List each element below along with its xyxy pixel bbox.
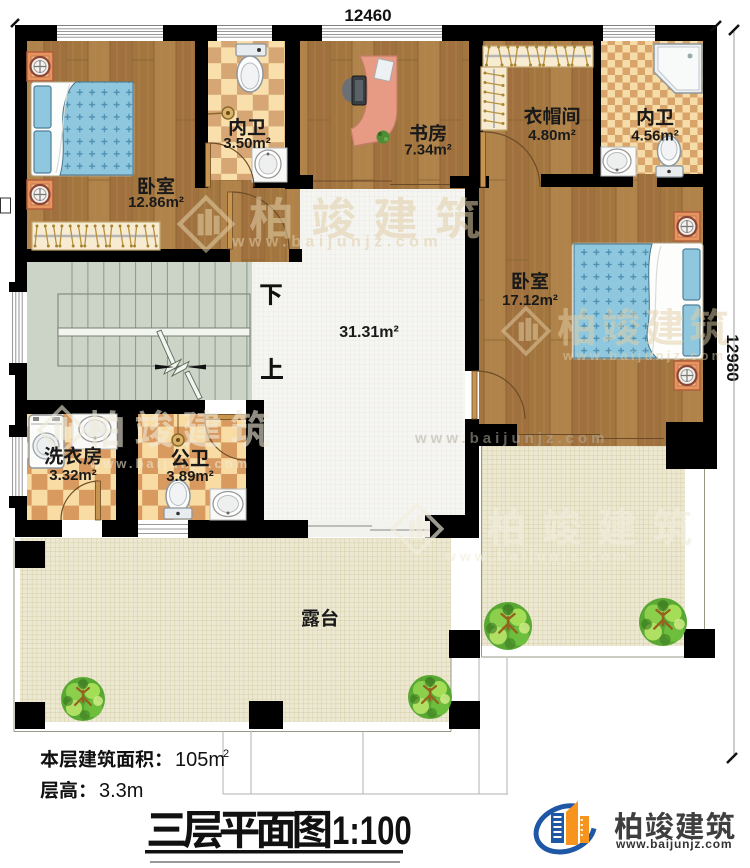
svg-text:www.baijunjz.com: www.baijunjz.com: [231, 234, 442, 251]
svg-text:3.50m²: 3.50m²: [223, 135, 271, 152]
svg-text:7.34m²: 7.34m²: [404, 142, 452, 159]
svg-text:3.89m²: 3.89m²: [166, 468, 214, 485]
svg-text:www.baijunjz.com: www.baijunjz.com: [444, 548, 630, 564]
svg-text:1:100: 1:100: [332, 808, 412, 853]
svg-text:www.baijunjz.com: www.baijunjz.com: [615, 837, 732, 851]
svg-text:www.baijunjz.com: www.baijunjz.com: [562, 348, 726, 363]
svg-text:12.86m²: 12.86m²: [128, 194, 184, 211]
svg-text:www.baijunjz.com: www.baijunjz.com: [414, 430, 608, 447]
svg-text:31.31m²: 31.31m²: [339, 324, 399, 341]
svg-text:3.32m²: 3.32m²: [49, 467, 97, 484]
svg-text:12980: 12980: [723, 334, 742, 381]
svg-text:3.3m: 3.3m: [99, 780, 143, 802]
svg-text:4.80m²: 4.80m²: [528, 127, 576, 144]
svg-text:4.56m²: 4.56m²: [631, 128, 679, 145]
svg-text:2: 2: [223, 748, 229, 760]
svg-text:12460: 12460: [344, 6, 391, 25]
svg-text:17.12m²: 17.12m²: [502, 292, 558, 309]
svg-text:105m: 105m: [175, 749, 225, 771]
